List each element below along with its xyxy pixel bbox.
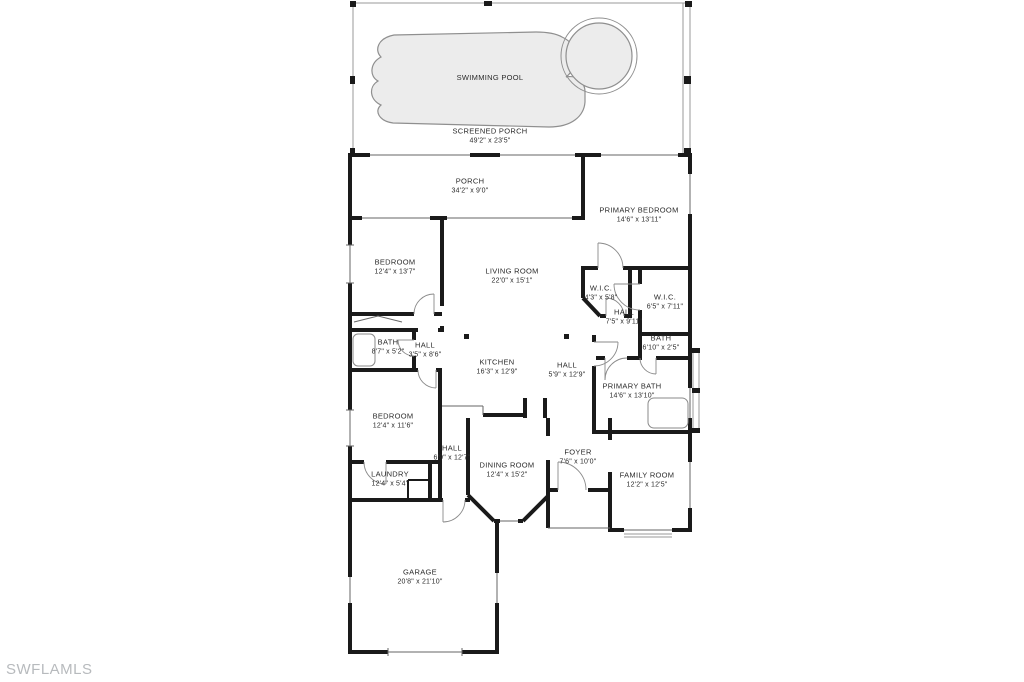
room-label-primary-bath: PRIMARY BATH14'6" x 13'10" — [602, 382, 661, 401]
room-label-bedroom-1: BEDROOM12'4" x 13'7" — [375, 258, 416, 277]
room-label-bath-1: BATH8'7" x 5'2" — [372, 338, 405, 357]
room-label-porch: PORCH34'2" x 9'0" — [452, 177, 489, 196]
room-label-dining-room: DINING ROOM12'4" x 15'2" — [480, 461, 535, 480]
room-label-screened-porch: SCREENED PORCH49'2" x 23'5" — [452, 127, 527, 146]
room-label-hall-1: HALL7'5" x 9'11" — [606, 308, 642, 327]
room-label-wic-1: W.I.C.4'3" x 5'8" — [585, 284, 618, 303]
room-label-garage: GARAGE20'8" x 21'10" — [397, 568, 442, 587]
room-label-swimming-pool: SWIMMING POOL — [457, 73, 524, 83]
room-label-kitchen: KITCHEN16'3" x 12'9" — [477, 358, 518, 377]
mls-watermark: SWFLAMLS — [6, 661, 93, 678]
room-label-laundry: LAUNDRY12'4" x 5'4" — [371, 470, 409, 489]
room-label-hall-2: HALL3'5" x 8'6" — [409, 341, 442, 360]
room-label-hall-3: HALL5'9" x 12'9" — [549, 361, 586, 380]
floorplan-canvas: SWIMMING POOL SCREENED PORCH49'2" x 23'5… — [0, 0, 1024, 682]
room-label-hall-4: HALL6'9" x 12'7" — [434, 444, 471, 463]
spa-shape — [566, 23, 632, 89]
room-label-wic-2: W.I.C.6'5" x 7'11" — [647, 293, 683, 312]
room-label-primary-bedroom: PRIMARY BEDROOM14'6" x 13'11" — [599, 206, 678, 225]
room-label-foyer: FOYER7'6" x 10'0" — [560, 448, 597, 467]
room-label-living-room: LIVING ROOM22'0" x 15'1" — [485, 267, 538, 286]
room-label-bedroom-2: BEDROOM12'4" x 11'6" — [373, 412, 414, 431]
room-label-family-room: FAMILY ROOM12'2" x 12'5" — [620, 471, 675, 490]
floorplan-drawing — [0, 0, 1024, 682]
room-label-bath-2: BATH6'10" x 2'5" — [643, 334, 680, 353]
